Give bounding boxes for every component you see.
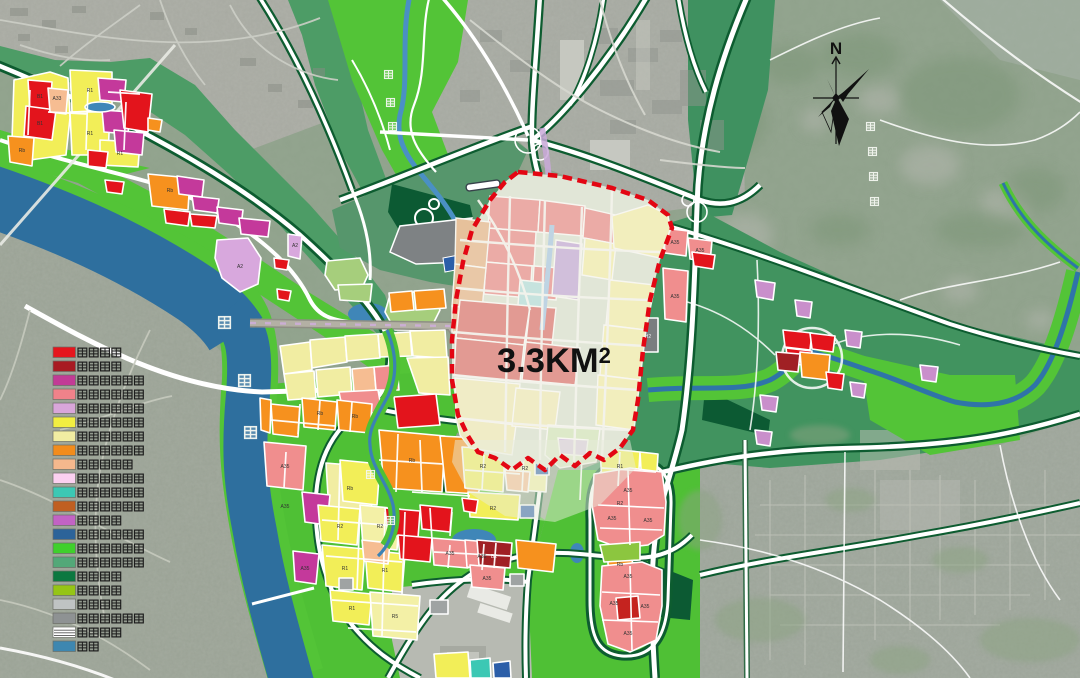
svg-text:A35: A35 [610,601,619,607]
svg-text:A35: A35 [671,294,680,300]
svg-text:R2: R2 [337,524,344,530]
svg-text:R1: R1 [117,151,124,157]
svg-text:A35: A35 [644,518,653,524]
svg-text:A35: A35 [671,240,680,246]
svg-text:R2: R2 [522,466,529,472]
svg-text:Rb: Rb [409,458,416,464]
svg-text:A35: A35 [641,604,650,610]
svg-text:N: N [830,39,842,58]
svg-text:A35: A35 [281,504,290,510]
svg-text:A35: A35 [608,516,617,522]
svg-text:R2: R2 [377,524,384,530]
svg-text:R5: R5 [392,614,399,620]
svg-text:R1: R1 [87,131,94,137]
svg-text:Rb: Rb [617,562,624,568]
svg-text:R2: R2 [480,464,487,470]
svg-text:B1: B1 [37,121,43,127]
svg-text:A35: A35 [624,631,633,637]
svg-text:Rb: Rb [352,414,359,420]
svg-text:A2: A2 [292,243,298,249]
svg-text:A35: A35 [483,576,492,582]
svg-text:A35: A35 [696,248,705,254]
svg-text:Rb: Rb [19,148,26,154]
svg-text:A35: A35 [446,551,455,557]
svg-text:R1: R1 [342,566,349,572]
svg-text:R1: R1 [349,606,356,612]
svg-text:Rb: Rb [167,188,174,194]
svg-text:B2: B2 [491,554,497,560]
svg-text:A33: A33 [53,96,62,102]
svg-text:A35: A35 [478,554,487,560]
svg-text:Rb: Rb [347,486,354,492]
svg-text:B1: B1 [37,94,43,100]
svg-text:H2: H2 [645,334,652,340]
svg-text:A35: A35 [624,488,633,494]
svg-text:A35: A35 [624,574,633,580]
svg-text:A2: A2 [237,264,243,270]
svg-text:Rb: Rb [317,411,324,417]
svg-text:A35: A35 [281,464,290,470]
svg-text:R1: R1 [382,568,389,574]
svg-text:3.3KM2: 3.3KM2 [497,342,611,380]
svg-text:R2: R2 [617,501,624,507]
svg-text:R2: R2 [490,506,497,512]
svg-text:R1: R1 [617,464,624,470]
svg-text:R1: R1 [87,88,94,94]
svg-text:A35: A35 [301,566,310,572]
